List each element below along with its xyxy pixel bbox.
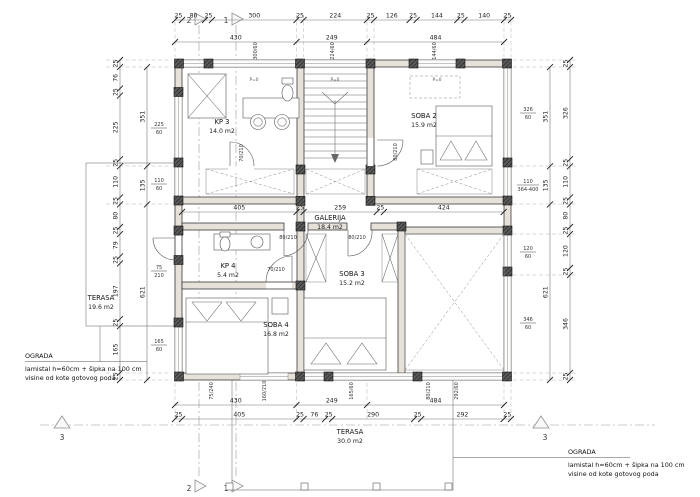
column xyxy=(456,59,465,68)
notes: OGRADA lamistal h=60cm + šipka na 100 cm… xyxy=(25,352,685,478)
dim-label: 25 xyxy=(175,412,183,419)
dim-label: 346 xyxy=(563,318,570,330)
room-area: 30.0 m2 xyxy=(337,438,363,445)
opening-label: 60 xyxy=(156,186,162,192)
vanity-counter xyxy=(243,98,299,118)
dim-label: 25 xyxy=(414,412,422,419)
dim-label: 621 xyxy=(140,286,147,298)
dim-label: 249 xyxy=(326,398,338,405)
column xyxy=(397,222,406,231)
dim-label: 25 xyxy=(113,88,120,96)
dim-label: 25 xyxy=(563,372,570,380)
dim-label: 25 xyxy=(367,13,375,20)
opening-label: 326 xyxy=(523,107,533,113)
opening-label: 60 xyxy=(525,115,531,121)
dim-label: 25 xyxy=(113,256,120,264)
floor-plan-page: 2 1 2 1 3 3 xyxy=(0,0,700,497)
dim-label: 25 xyxy=(205,13,213,20)
column xyxy=(503,267,512,276)
stairwell-wall-right xyxy=(367,67,374,204)
section-marker-label: 1 xyxy=(224,16,229,25)
terrace-post xyxy=(445,483,452,490)
bed xyxy=(186,298,268,374)
toilet xyxy=(220,237,230,251)
section-marker-label: 3 xyxy=(60,433,65,442)
terrace-post xyxy=(373,483,380,490)
opening-label: 110 xyxy=(154,178,164,184)
door-opening xyxy=(368,138,374,166)
gallery-north-wall xyxy=(182,197,297,204)
dim-label: 80 xyxy=(563,212,570,220)
room-name: SOBA 4 xyxy=(263,321,288,329)
dim-label: 25 xyxy=(296,13,304,20)
opening-label: 160/210 xyxy=(262,381,268,402)
column xyxy=(296,372,305,381)
dim-label: 621 xyxy=(543,286,550,298)
dim-label: 25 xyxy=(563,159,570,167)
dim-label: 292 xyxy=(457,412,469,419)
opening-label: 60 xyxy=(525,325,531,331)
column xyxy=(296,165,305,174)
toilet-tank xyxy=(220,232,230,237)
door-opening xyxy=(266,283,292,289)
door-opening xyxy=(176,236,182,257)
dim-label: 430 xyxy=(230,398,242,405)
ograda-note-line: lamistal h=60cm + šipka na 100 cm xyxy=(25,365,142,373)
opening-label: 80/210 xyxy=(426,382,432,400)
column xyxy=(296,281,305,290)
column xyxy=(174,318,183,327)
dim-chain-right-detail: 25326251102580251202534625 xyxy=(563,57,574,383)
opening-label: 292/60 xyxy=(454,382,460,400)
section-marker-icon xyxy=(533,416,549,428)
dim-label: 25 xyxy=(503,412,511,419)
column xyxy=(174,88,183,97)
sink xyxy=(275,115,290,130)
column xyxy=(409,59,418,68)
room-name: SOBA 3 xyxy=(339,270,364,278)
dim-label: 25 xyxy=(563,60,570,68)
room-name: KP 4 xyxy=(220,262,235,270)
dim-label: 126 xyxy=(386,13,398,20)
door-label: 80/210 xyxy=(348,235,366,241)
door-label: 70/210 xyxy=(239,144,245,162)
ograda-title: OGRADA xyxy=(25,352,53,360)
room-area: 18.4 m2 xyxy=(317,224,343,231)
section-marker-icon xyxy=(232,13,243,25)
ograda-note-line: lamistal h=60cm + šipka na 100 cm xyxy=(568,461,685,469)
sink xyxy=(251,236,263,248)
door-label: 80/210 xyxy=(279,235,297,241)
section-marker-icon xyxy=(54,416,70,428)
dim-label: 405 xyxy=(233,205,245,212)
dim-label: 300 xyxy=(248,13,260,20)
room-area: 15.2 m2 xyxy=(339,280,365,287)
opening-label: 75/240 xyxy=(209,382,215,400)
dim-label: 165 xyxy=(113,344,120,356)
column xyxy=(174,226,183,235)
dim-label: 25 xyxy=(457,13,465,20)
dim-label: 25 xyxy=(504,13,512,20)
opening-label: 60 xyxy=(156,347,162,353)
room-area: 16.8 m2 xyxy=(263,331,289,338)
sink xyxy=(251,115,266,130)
column xyxy=(204,59,213,68)
dim-label: 224 xyxy=(329,13,341,20)
void-top-wall xyxy=(405,227,504,234)
dim-label: 25 xyxy=(113,197,120,205)
dim-label: 25 xyxy=(409,13,417,20)
dim-label: 135 xyxy=(140,179,147,191)
column xyxy=(503,59,512,68)
dim-label: 25 xyxy=(563,227,570,235)
stairs xyxy=(304,74,367,163)
column xyxy=(175,59,184,68)
dim-label: 110 xyxy=(113,176,120,188)
dim-label: 135 xyxy=(543,179,550,191)
dim-label: 25 xyxy=(325,412,333,419)
gallery-north-wall xyxy=(374,197,504,204)
column xyxy=(296,59,305,68)
dim-label: 25 xyxy=(175,13,183,20)
door-swing xyxy=(284,230,308,256)
opening-label: 346 xyxy=(523,317,533,323)
nightstand xyxy=(272,298,288,314)
room-area: 5.4 m2 xyxy=(217,272,239,279)
column xyxy=(324,372,333,381)
dim-label: 80 xyxy=(190,13,198,20)
ograda-title: OGRADA xyxy=(568,448,596,456)
terrace-post xyxy=(226,483,233,490)
dim-label: 25 xyxy=(296,412,304,419)
floor-plan-svg: 2 1 2 1 3 3 xyxy=(0,0,700,497)
opening-label: 144/60 xyxy=(432,42,438,60)
opening-label: 165 xyxy=(154,339,164,345)
dim-label: 25 xyxy=(563,268,570,276)
dim-label: 405 xyxy=(233,412,245,419)
opening-label: 120 xyxy=(523,246,533,252)
column xyxy=(503,158,512,167)
opening-label: 60 xyxy=(525,254,531,260)
ograda-note-line: visine od kote gotovog poda xyxy=(568,470,659,478)
opening-label: 60 xyxy=(156,130,162,136)
interior-wall-vertical xyxy=(398,223,405,373)
toilet-tank xyxy=(282,78,293,84)
dim-label: 80 xyxy=(113,212,120,220)
dim-label: 424 xyxy=(438,205,450,212)
doors xyxy=(153,138,403,289)
door-swing xyxy=(153,238,175,260)
dim-label: 25 xyxy=(113,159,120,167)
section-marker-label: 3 xyxy=(543,433,548,442)
room-name: TERASA xyxy=(87,294,115,302)
door-label: 70/210 xyxy=(267,267,285,273)
opening-label: 210 xyxy=(154,273,164,279)
dim-chain-left-group: 351135621 xyxy=(140,64,151,383)
dim-label: 25 xyxy=(376,205,384,212)
column xyxy=(503,372,512,381)
dim-label: 25 xyxy=(563,197,570,205)
column xyxy=(366,165,375,174)
dim-label: 79 xyxy=(113,241,120,249)
dim-label: 351 xyxy=(543,111,550,123)
dim-chain-right-group: 351135621 xyxy=(543,64,554,383)
room-name: GALERIJA xyxy=(314,214,346,222)
section-marker-label: 2 xyxy=(187,484,192,493)
dim-label: 326 xyxy=(563,107,570,119)
opening-label: 225 xyxy=(154,122,164,128)
opening-label: 364-400 xyxy=(518,187,539,193)
parapet-label: P=0 xyxy=(250,77,259,83)
nightstand xyxy=(421,150,433,164)
dim-label: 351 xyxy=(140,111,147,123)
stairwell-wall-left xyxy=(297,67,304,204)
dim-label: 249 xyxy=(326,35,338,42)
door-swing xyxy=(377,140,403,166)
column xyxy=(413,372,422,381)
ograda-note-line: visine od kote gotovog poda xyxy=(25,374,116,382)
door-swing xyxy=(348,230,372,256)
column xyxy=(366,59,375,68)
dim-label: 110 xyxy=(563,176,570,188)
room-area: 14.0 m2 xyxy=(209,128,235,135)
room-name: SOBA 2 xyxy=(411,112,436,120)
toilet xyxy=(282,85,293,101)
dim-chain-bottom-detail: 254052576252902529225 xyxy=(172,412,514,423)
opening-label: 165/60 xyxy=(349,382,355,400)
dim-label: 290 xyxy=(367,412,379,419)
parapet-label: P=0 xyxy=(331,77,340,83)
stair-arrow-icon xyxy=(331,154,339,163)
column xyxy=(296,222,305,231)
dim-label: 76 xyxy=(113,74,120,82)
void-x xyxy=(306,169,365,194)
opening-label: 75 xyxy=(156,265,162,271)
room-name: KP 3 xyxy=(214,118,229,126)
terrace-post xyxy=(301,483,308,490)
column xyxy=(174,158,183,167)
dim-label: 76 xyxy=(310,412,318,419)
column xyxy=(175,372,184,381)
dim-label: 144 xyxy=(431,13,443,20)
dim-chain-left-detail: 2576252252511025802579251972516525 xyxy=(113,57,124,383)
column xyxy=(366,196,375,205)
opening-label: 300/60 xyxy=(253,42,259,60)
dim-label: 25 xyxy=(113,227,120,235)
column xyxy=(503,196,512,205)
door-opening xyxy=(228,167,254,173)
opening-label: 110 xyxy=(523,179,533,185)
dim-label: 225 xyxy=(113,121,120,133)
room-area: 15.9 m2 xyxy=(411,122,437,129)
dim-label: 140 xyxy=(478,13,490,20)
dim-chain-top-group: 430249484 xyxy=(172,35,507,46)
parapet-label: P=0 xyxy=(433,77,442,83)
opening-label: 224/60 xyxy=(330,42,336,60)
dim-label: 259 xyxy=(334,205,346,212)
dim-label: 430 xyxy=(230,35,242,42)
section-marker-icon xyxy=(195,480,206,492)
column xyxy=(174,256,183,265)
dim-label: 120 xyxy=(563,245,570,257)
room-name: TERASA xyxy=(336,428,364,436)
dim-label: 25 xyxy=(113,60,120,68)
dim-label: 484 xyxy=(430,35,442,42)
gallery-south-wall xyxy=(182,223,284,230)
column xyxy=(503,226,512,235)
column xyxy=(174,196,183,205)
dim-label: 25 xyxy=(113,319,120,327)
room-area: 19.6 m2 xyxy=(88,304,114,311)
dim-label: 25 xyxy=(296,205,304,212)
door-label: 80/210 xyxy=(393,143,399,161)
